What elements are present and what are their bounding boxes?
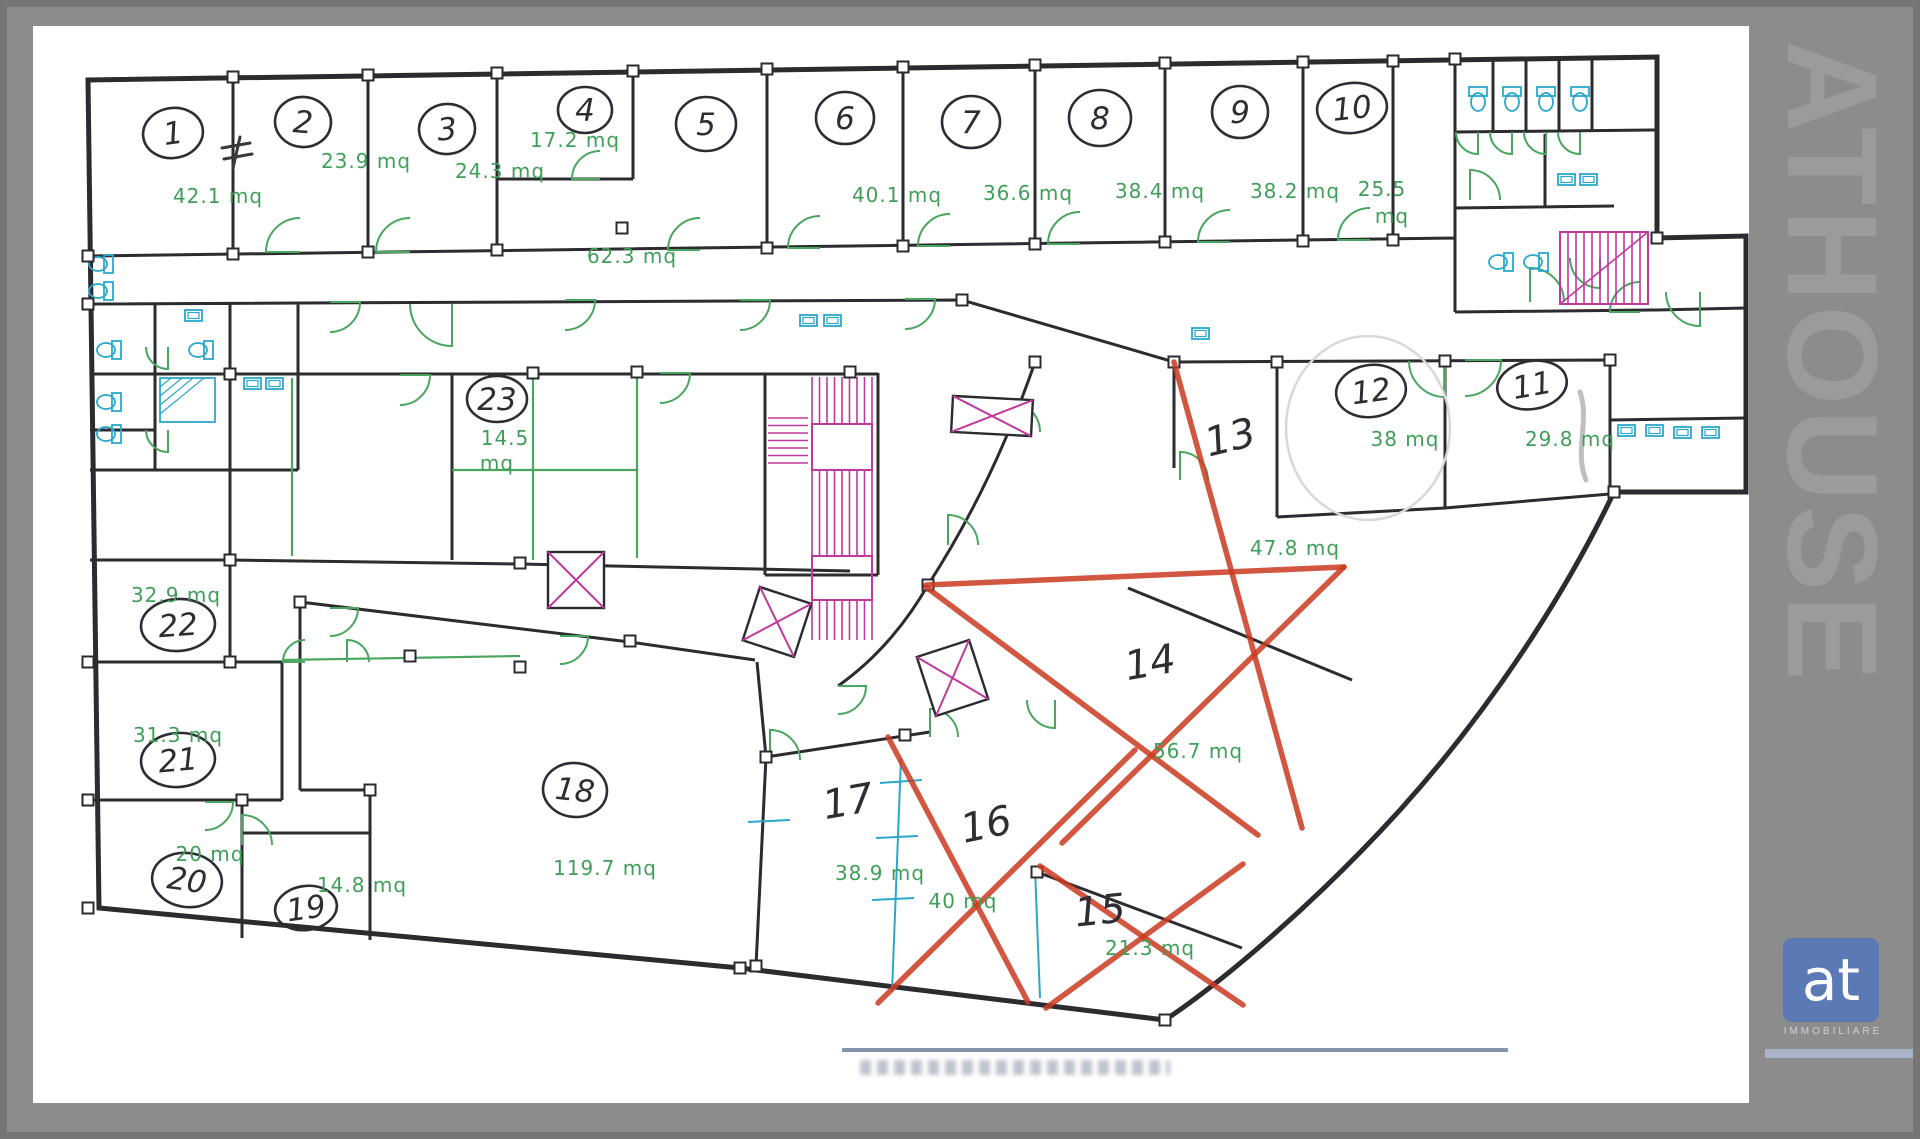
room-area: 21.3 mq xyxy=(1105,936,1195,960)
room-area: 36.6 mq xyxy=(983,181,1073,205)
door-arc xyxy=(838,686,866,714)
sink-icon xyxy=(1674,427,1691,438)
room-number: 3 xyxy=(436,111,459,149)
toilet-icon xyxy=(1571,87,1589,111)
wall-post xyxy=(1030,239,1041,250)
wall-post xyxy=(900,730,911,741)
room-number: 21 xyxy=(157,741,199,780)
wall-post xyxy=(225,555,236,566)
room-number: 18 xyxy=(553,771,596,811)
door-arc xyxy=(146,430,168,452)
sink-icon xyxy=(824,315,841,326)
wall-post xyxy=(845,367,856,378)
door-arcs xyxy=(146,132,1700,845)
door-arc xyxy=(1490,132,1512,154)
room-area: 29.8 mq xyxy=(1525,427,1615,451)
room-number: 13 xyxy=(1200,409,1261,466)
room-number: 9 xyxy=(1230,95,1250,131)
room-area: 119.7 mq xyxy=(553,856,657,880)
door-arc xyxy=(788,216,820,248)
room-area: 40.1 mq xyxy=(852,183,942,207)
wall-post xyxy=(628,66,639,77)
wall-post xyxy=(898,62,909,73)
room-label-4: 417.2 mq xyxy=(530,87,620,152)
sink-icon xyxy=(1702,427,1719,438)
wall-post xyxy=(363,247,374,258)
red-cross-mark xyxy=(926,587,1258,835)
room-label-2: 223.9 mq xyxy=(273,95,411,173)
wall-post xyxy=(898,241,909,252)
door-arc xyxy=(560,636,588,664)
door-arc xyxy=(1338,208,1370,240)
toilet-icon xyxy=(97,393,121,411)
room-number: 6 xyxy=(835,101,855,137)
wall-post xyxy=(363,70,374,81)
door-arc xyxy=(330,608,358,636)
wall-post xyxy=(735,963,746,974)
room-label-22: 2232.9 mq xyxy=(131,583,221,654)
room-area: 32.9 mq xyxy=(131,583,221,607)
room-label-6: 640.1 mq xyxy=(816,92,942,207)
wall-post xyxy=(237,795,248,806)
wall-post xyxy=(762,243,773,254)
room-area: 38.9 mq xyxy=(835,861,925,885)
door-arc xyxy=(948,515,978,545)
room-number: 22 xyxy=(157,607,199,646)
room-number: 1 xyxy=(161,115,186,153)
door-arc xyxy=(266,218,300,252)
room-area: 31.3 mq xyxy=(133,723,223,747)
door-arc xyxy=(1610,282,1640,312)
wall-post xyxy=(762,64,773,75)
sink-icon xyxy=(1646,425,1663,436)
door-arc xyxy=(1558,132,1580,154)
wall-post xyxy=(83,795,94,806)
room-label-8: 838.4 mq xyxy=(1069,90,1205,203)
room-label-11: 1129.8 mq xyxy=(1493,355,1615,451)
wall-post xyxy=(625,636,636,647)
wall-post xyxy=(1298,236,1309,247)
room-number: 7 xyxy=(961,105,981,141)
agency-logo: at IMMOBILIARE xyxy=(1783,938,1883,1042)
door-arc xyxy=(400,375,430,405)
elevator-icon xyxy=(917,640,988,716)
door-arc xyxy=(376,218,410,252)
room-area-unit: mq xyxy=(1375,204,1409,228)
room-number: 10 xyxy=(1331,89,1374,129)
door-arc xyxy=(1198,210,1230,242)
sink-icon xyxy=(266,378,283,389)
wall-post xyxy=(83,903,94,914)
wall-post xyxy=(225,657,236,668)
door-arc xyxy=(660,373,690,403)
room-label-19: 1914.8 mq xyxy=(272,873,407,934)
room-area: 24.3 mq xyxy=(455,159,545,183)
room-number: 15 xyxy=(1072,885,1127,936)
toilet-icon xyxy=(189,341,213,359)
door-arc xyxy=(410,304,452,346)
door-arc xyxy=(572,151,600,179)
wall-post xyxy=(957,295,968,306)
sink-icon xyxy=(1558,174,1575,185)
room-area: 40 mq xyxy=(929,889,998,913)
stair-top-right xyxy=(1560,232,1648,304)
toilet-icon xyxy=(1524,253,1548,271)
door-arc xyxy=(1470,170,1500,200)
wall-post xyxy=(1388,235,1399,246)
toilet-icon xyxy=(1503,87,1521,111)
agency-logo-mark: at xyxy=(1783,938,1879,1022)
room-label-18: 18119.7 mq xyxy=(540,760,657,880)
sink-icon xyxy=(185,310,202,321)
room-label-5: 562.3 mq xyxy=(587,97,736,268)
wall-post xyxy=(405,651,416,662)
wall-post xyxy=(1609,487,1620,498)
wall-post xyxy=(1440,356,1451,367)
room-number: 23 xyxy=(477,382,516,418)
door-arc xyxy=(242,815,272,845)
red-cross-mark xyxy=(926,567,1344,585)
sink-icon xyxy=(1580,174,1597,185)
sink-icon xyxy=(800,315,817,326)
room-number: 17 xyxy=(819,775,878,829)
wall-post xyxy=(1605,355,1616,366)
wall-post xyxy=(1160,237,1171,248)
wall-post xyxy=(365,785,376,796)
logo-strip xyxy=(1765,1049,1920,1058)
door-arc xyxy=(146,347,168,369)
agency-logo-subtext: IMMOBILIARE xyxy=(1783,1026,1883,1037)
floor-plan: 142.1 mq223.9 mq324.3 mq417.2 mq562.3 mq… xyxy=(0,0,1920,1139)
elevator-icon xyxy=(951,396,1033,436)
room-area: 47.8 mq xyxy=(1250,536,1340,560)
room-label-20: 2020 mq xyxy=(149,842,245,912)
wall-post xyxy=(83,299,94,310)
wall-post xyxy=(492,245,503,256)
green-partitions xyxy=(283,374,637,660)
wall-post xyxy=(1160,58,1171,69)
door-arc xyxy=(1524,132,1546,154)
wall-post xyxy=(1272,357,1283,368)
room-number: 5 xyxy=(696,107,716,143)
room-label-12: 1238 mq xyxy=(1333,360,1440,451)
footer-divider-line xyxy=(842,1048,1508,1052)
room-number: 2 xyxy=(292,104,315,142)
room-number: 4 xyxy=(575,93,595,129)
door-arc xyxy=(205,802,233,830)
footer-blurred-text xyxy=(860,1060,1170,1075)
room-area: 17.2 mq xyxy=(530,128,620,152)
sink-icon xyxy=(1618,425,1635,436)
wall-post xyxy=(761,752,772,763)
wall-post xyxy=(228,249,239,260)
room-area: 56.7 mq xyxy=(1153,739,1243,763)
toilet-icon xyxy=(97,341,121,359)
door-arc xyxy=(1465,360,1501,396)
room-area: 42.1 mq xyxy=(173,184,263,208)
room-area: 38.4 mq xyxy=(1115,179,1205,203)
room-area: 23.9 mq xyxy=(321,149,411,173)
room-label-23: 2314.5mq xyxy=(467,376,529,475)
room-label-7: 736.6 mq xyxy=(942,96,1073,205)
wall-post xyxy=(1652,233,1663,244)
room-number: 11 xyxy=(1510,365,1555,407)
wall-post xyxy=(492,68,503,79)
room-area-unit: mq xyxy=(480,451,514,475)
toilet-icon xyxy=(1489,253,1513,271)
room-area: 38.2 mq xyxy=(1250,179,1340,203)
door-arc xyxy=(1530,268,1564,302)
room-number: 20 xyxy=(165,860,209,901)
room-label-3: 324.3 mq xyxy=(417,102,545,183)
room-area: 62.3 mq xyxy=(587,244,677,268)
room-number: 12 xyxy=(1349,371,1393,412)
wall-post xyxy=(1160,1015,1171,1026)
wall-post xyxy=(1450,54,1461,65)
room-labels: 142.1 mq223.9 mq324.3 mq417.2 mq562.3 mq… xyxy=(131,79,1615,960)
shower-icon xyxy=(160,378,215,422)
wall-post xyxy=(751,961,762,972)
wall-post xyxy=(83,657,94,668)
toilet-icon xyxy=(1469,87,1487,111)
wall-post xyxy=(617,223,628,234)
elevator-icon xyxy=(548,552,604,608)
elevator-icon xyxy=(743,587,812,657)
room-area: 20 mq xyxy=(176,842,245,866)
sink-icon xyxy=(244,378,261,389)
door-arc xyxy=(1027,700,1055,728)
room-number: 8 xyxy=(1090,101,1110,137)
wall-post xyxy=(295,597,306,608)
room-area: 25.5 xyxy=(1358,177,1407,201)
wall-post xyxy=(515,558,526,569)
room-area: 14.5 xyxy=(481,426,530,450)
room-label-9: 938.2 mq xyxy=(1212,86,1340,203)
wall-post xyxy=(515,662,526,673)
wall-post xyxy=(83,251,94,262)
door-arc xyxy=(330,302,360,332)
door-arc xyxy=(918,214,950,246)
toilet-icon xyxy=(97,425,121,443)
room-label-16: 1640 mq xyxy=(929,797,1016,913)
stairs-and-elevators xyxy=(548,232,1648,716)
red-cross-mark xyxy=(1062,567,1344,843)
wall-post xyxy=(225,369,236,380)
room-label-17: 1738.9 mq xyxy=(819,775,925,885)
door-arc xyxy=(905,299,935,329)
wall-post xyxy=(1030,60,1041,71)
room-number: 16 xyxy=(957,797,1016,853)
wall-post xyxy=(528,368,539,379)
toilet-icon xyxy=(1537,87,1555,111)
wall-post xyxy=(1298,57,1309,68)
room-label-10: 1025.5mq xyxy=(1315,79,1410,228)
door-arc xyxy=(1048,212,1080,244)
door-arc xyxy=(740,300,770,330)
wall-post xyxy=(1388,56,1399,67)
wall-post xyxy=(228,72,239,83)
wall-post xyxy=(1030,357,1041,368)
sink-icon xyxy=(1192,328,1209,339)
door-arc xyxy=(1456,132,1478,154)
room-label-21: 2131.3 mq xyxy=(133,723,223,790)
room-area: 38 mq xyxy=(1371,427,1440,451)
room-number: 14 xyxy=(1121,636,1179,690)
door-arc xyxy=(565,300,595,330)
wall-post xyxy=(632,367,643,378)
room-area: 14.8 mq xyxy=(317,873,407,897)
